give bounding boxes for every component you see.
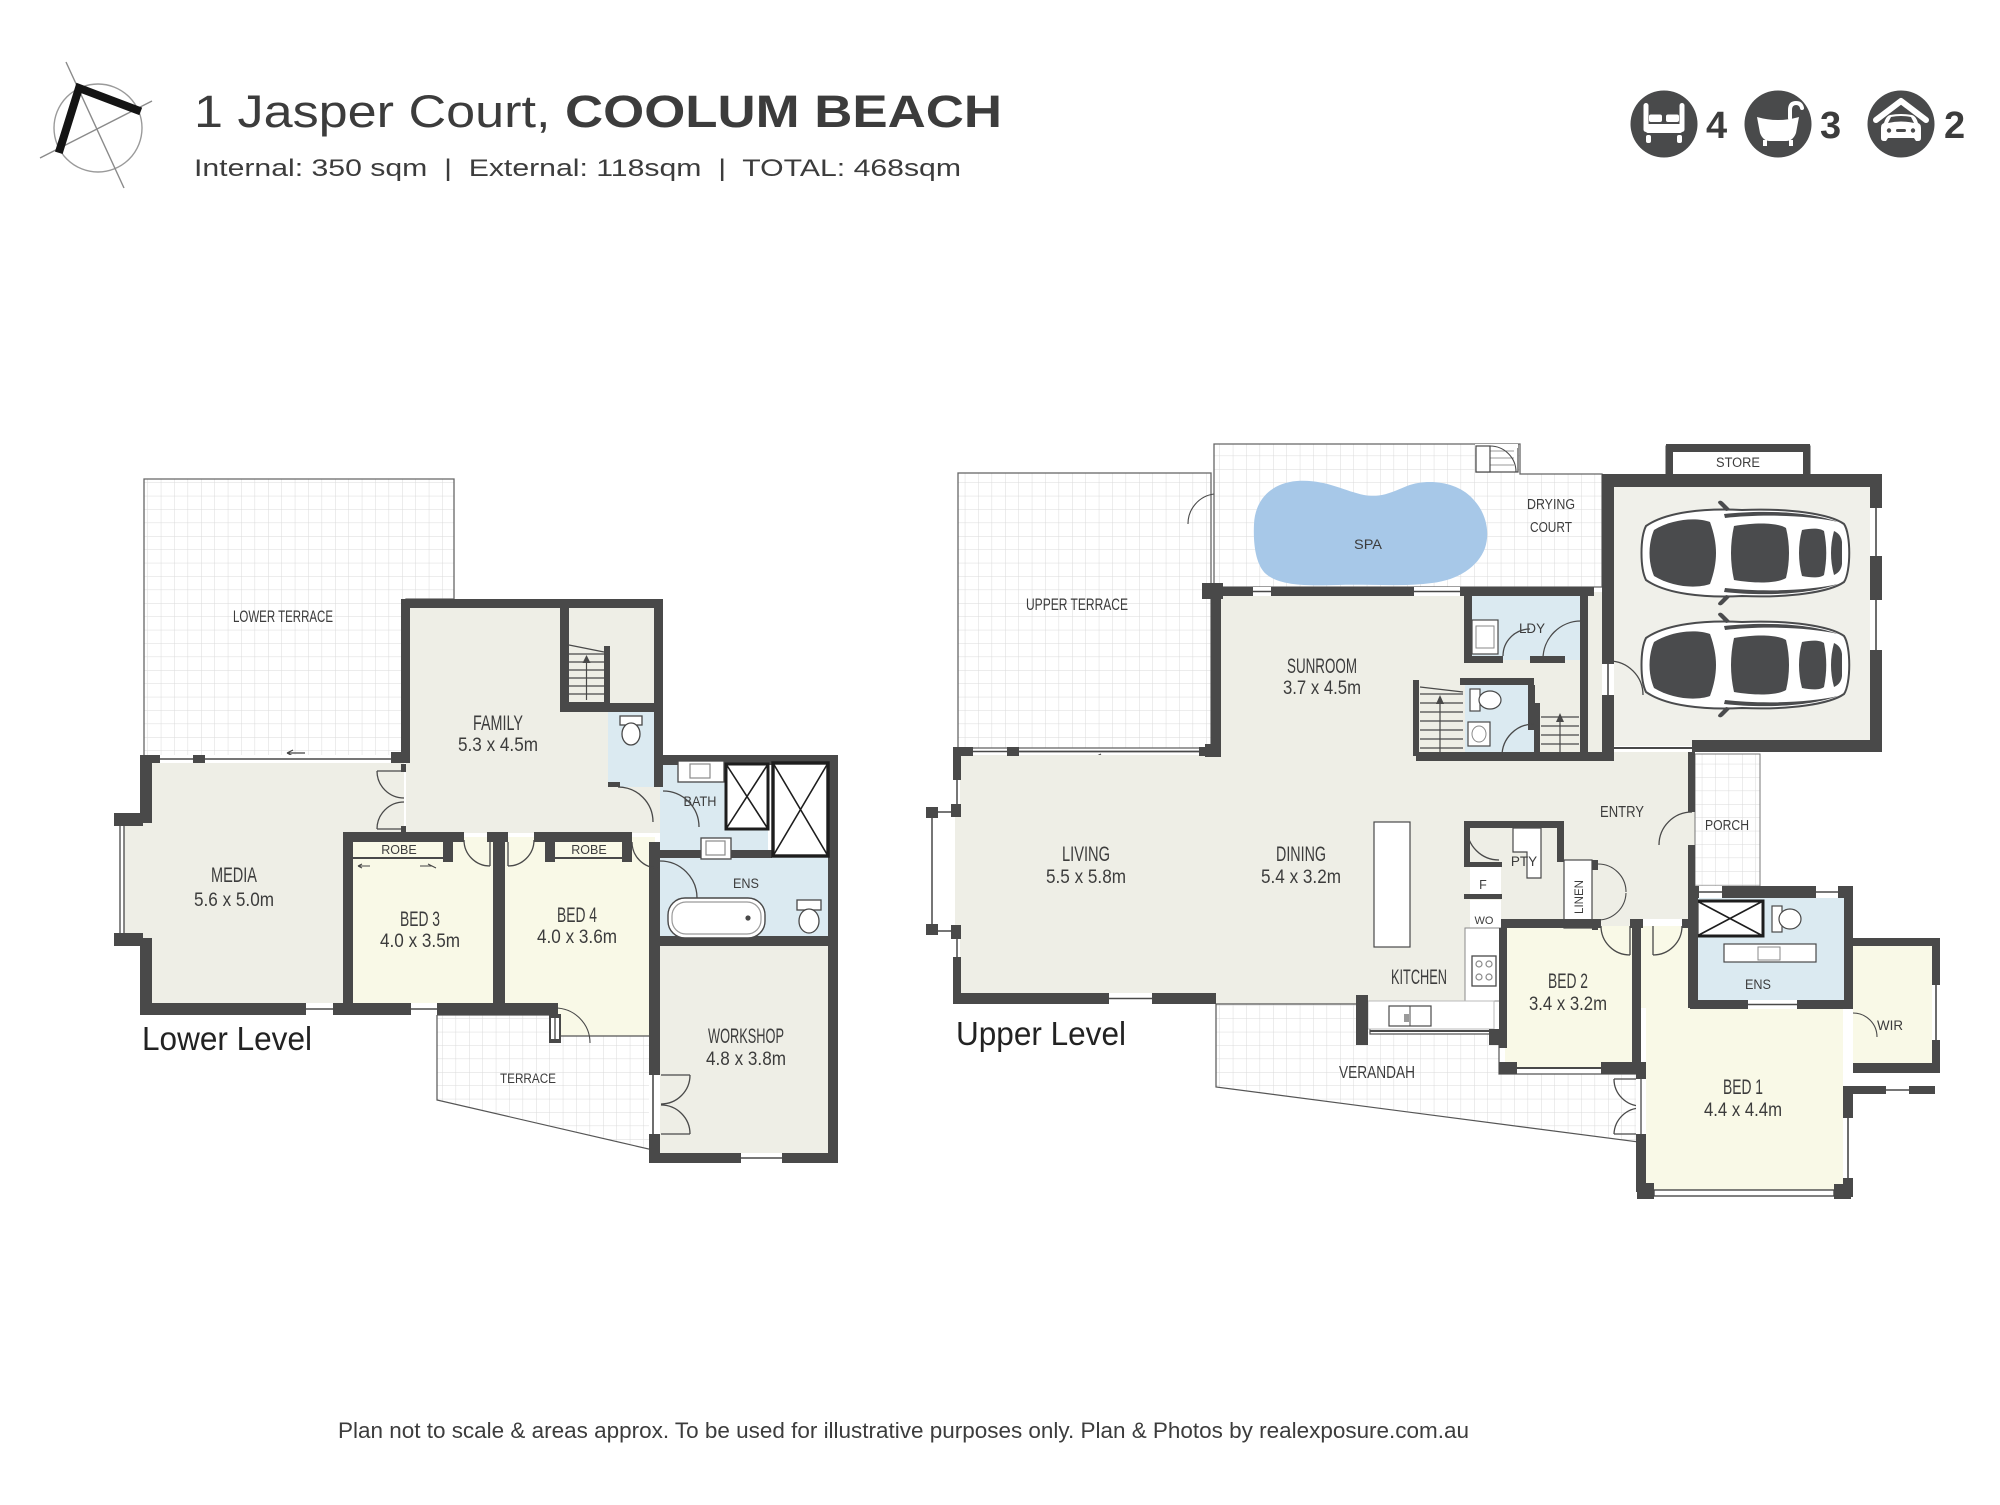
svg-text:LINEN: LINEN [1574,880,1586,914]
svg-text:3.7 x 4.5m: 3.7 x 4.5m [1283,678,1361,699]
svg-text:2: 2 [1944,105,1965,147]
svg-text:VERANDAH: VERANDAH [1339,1062,1415,1082]
svg-text:DINING: DINING [1276,843,1326,866]
svg-text:COURT: COURT [1530,519,1572,536]
svg-text:BED 2: BED 2 [1548,970,1588,993]
svg-text:Internal: 350 sqm | External: Internal: 350 sqm | External: 118sqm | T… [194,155,961,182]
svg-text:LIVING: LIVING [1062,843,1110,866]
svg-text:4.0 x 3.5m: 4.0 x 3.5m [380,931,460,952]
svg-text:Upper Level: Upper Level [956,1015,1126,1052]
svg-text:WORKSHOP: WORKSHOP [708,1025,784,1048]
svg-text:4.8 x 3.8m: 4.8 x 3.8m [706,1049,786,1070]
svg-text:5.5 x 5.8m: 5.5 x 5.8m [1046,867,1126,888]
svg-text:SUNROOM: SUNROOM [1287,655,1357,678]
svg-text:3: 3 [1820,105,1841,147]
svg-text:5.6 x 5.0m: 5.6 x 5.0m [194,890,274,911]
svg-text:LDY: LDY [1519,621,1545,636]
svg-text:ENTRY: ENTRY [1600,804,1644,821]
svg-text:KITCHEN: KITCHEN [1391,966,1447,989]
svg-text:FAMILY: FAMILY [473,712,523,735]
svg-text:LOWER TERRACE: LOWER TERRACE [233,608,333,626]
svg-text:SPA: SPA [1354,537,1382,552]
svg-text:BED 4: BED 4 [557,904,597,927]
svg-text:ENS: ENS [733,876,759,891]
svg-text:ROBE: ROBE [571,843,606,857]
svg-text:BED 3: BED 3 [400,908,440,931]
svg-text:TERRACE: TERRACE [500,1071,556,1086]
svg-text:ENS: ENS [1745,977,1771,992]
svg-text:4.0 x 3.6m: 4.0 x 3.6m [537,927,617,948]
svg-text:5.4 x 3.2m: 5.4 x 3.2m [1261,867,1341,888]
svg-text:MEDIA: MEDIA [211,864,257,887]
svg-text:PORCH: PORCH [1705,818,1749,834]
svg-text:1 Jasper Court, COOLUM BEACH: 1 Jasper Court, COOLUM BEACH [194,86,1002,137]
svg-text:5.3 x 4.5m: 5.3 x 4.5m [458,735,538,756]
svg-text:3.4 x 3.2m: 3.4 x 3.2m [1529,994,1607,1015]
svg-text:WO: WO [1475,915,1494,927]
svg-text:STORE: STORE [1716,455,1760,470]
svg-text:4.4 x 4.4m: 4.4 x 4.4m [1704,1100,1782,1121]
svg-text:ROBE: ROBE [381,843,416,857]
svg-text:DRYING: DRYING [1527,496,1575,513]
svg-text:PTY: PTY [1511,854,1537,869]
svg-text:4: 4 [1706,105,1727,147]
svg-text:Plan not to scale & areas appr: Plan not to scale & areas approx. To be … [338,1418,1469,1443]
svg-text:BED 1: BED 1 [1723,1076,1763,1099]
svg-text:F: F [1479,878,1487,892]
svg-text:WIR: WIR [1877,1018,1903,1033]
svg-text:UPPER TERRACE: UPPER TERRACE [1026,596,1128,614]
svg-text:Lower Level: Lower Level [142,1020,312,1057]
